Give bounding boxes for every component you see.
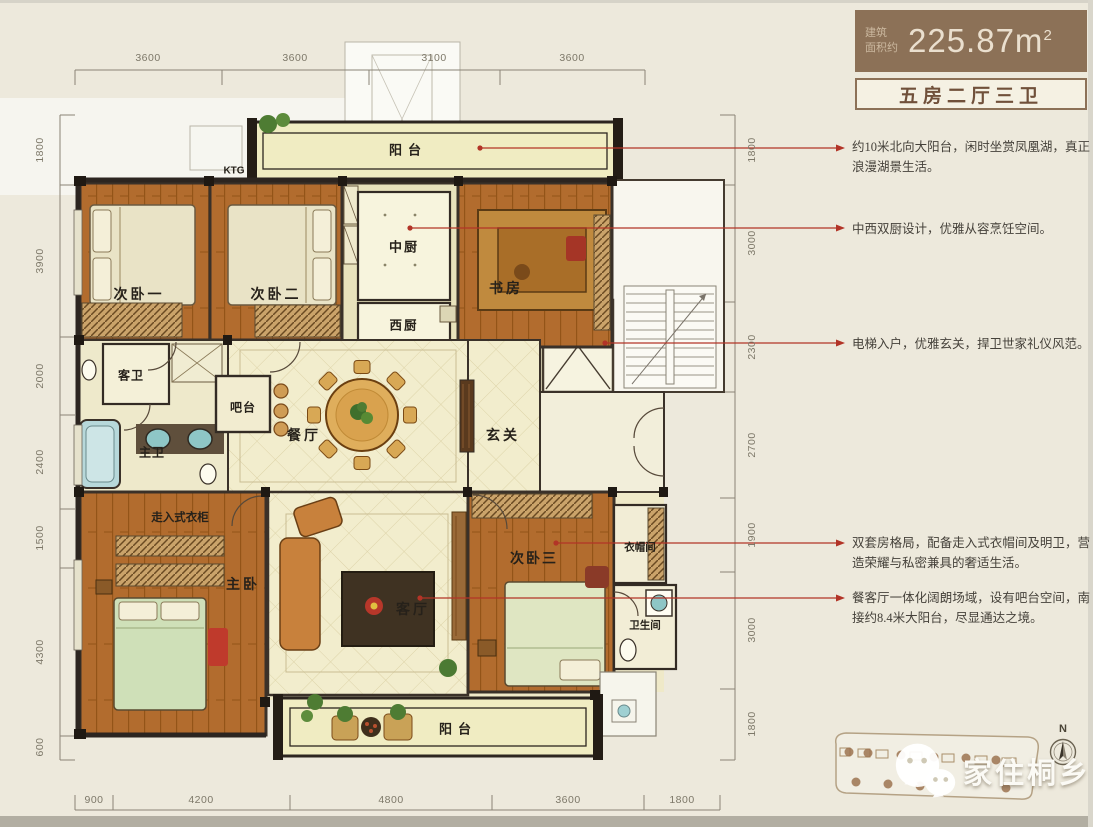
floorplan-graphic: [0, 0, 1093, 827]
room-label-master-bedroom: 主卧: [226, 574, 260, 594]
dim-left-1: 1800: [34, 137, 46, 162]
room-label-ktg: KTG: [223, 166, 244, 177]
area-prefix: 建筑 面积约: [865, 26, 898, 56]
bath-zone-shape: [78, 340, 228, 492]
dim-left-6: 4300: [34, 639, 46, 664]
wechat-icon: [893, 740, 959, 802]
room-label-kitchen-west: 西厨: [389, 315, 418, 334]
dim-left-7: 600: [34, 737, 46, 756]
dim-bottom-5: 1800: [669, 794, 694, 806]
room-label-study: 书房: [489, 278, 523, 298]
room-label-balcony-bottom: 阳台: [439, 719, 477, 738]
dim-bottom-1: 900: [84, 794, 103, 806]
annotation-elevator: 电梯入户，优雅玄关，捍卫世家礼仪风范。: [852, 334, 1090, 354]
room-label-kitchen-cn: 中厨: [389, 237, 419, 256]
dim-right-1: 1800: [746, 137, 758, 162]
dim-top-2: 3600: [282, 52, 307, 64]
room-label-walkin-closet: 走入式衣柜: [151, 509, 209, 525]
bedroom2-1-shape: [80, 183, 210, 340]
bedroom2-2-shape: [210, 183, 342, 340]
dim-bottom-3: 4800: [378, 794, 403, 806]
area-badge: 建筑 面积约 225.87m2: [855, 10, 1087, 72]
room-label-balcony-top: 阳台: [389, 140, 427, 159]
dim-top-4: 3600: [559, 52, 584, 64]
room-label-bedroom3: 次卧三: [510, 548, 558, 568]
master-suite-shape: [80, 492, 266, 735]
annotation-suites: 双套房格局，配备走入式衣帽间及明卫，营造荣耀与私密兼具的奢适生活。: [852, 533, 1090, 574]
room-label-foyer: 玄关: [486, 425, 520, 445]
room-label-living: 客厅: [396, 599, 430, 619]
equipment-platform: [600, 672, 656, 736]
stair-core: [612, 180, 724, 392]
dim-left-3: 2000: [34, 363, 46, 388]
room-label-guest-bath: 客卫: [118, 367, 144, 384]
annotation-living: 餐客厅一体化阔朗场域，设有吧台空间，南接约8.4米大阳台，尽显通达之境。: [852, 588, 1090, 629]
entry-lobby: [540, 392, 664, 492]
unit-type-label: 五房二厅三卫: [855, 78, 1087, 110]
room-label-bar: 吧台: [230, 399, 256, 416]
dim-right-6: 3000: [746, 617, 758, 642]
annotation-kitchen: 中西双厨设计，优雅从容烹饪空间。: [852, 219, 1090, 239]
dim-top-1: 3600: [135, 52, 160, 64]
room-label-bath3: 卫生间: [629, 618, 661, 633]
dim-right-4: 2700: [746, 432, 758, 457]
dim-top-3: 3100: [421, 52, 446, 64]
dim-left-4: 2400: [34, 449, 46, 474]
dim-bottom-2: 4200: [188, 794, 213, 806]
dim-right-3: 2300: [746, 334, 758, 359]
room-label-cloakroom: 衣帽间: [624, 540, 656, 555]
area-value: 225.87m2: [908, 22, 1053, 60]
dim-right-7: 1800: [746, 711, 758, 736]
dim-left-2: 3900: [34, 248, 46, 273]
watermark: 家住桐乡: [893, 740, 1091, 802]
watermark-text: 家住桐乡: [963, 750, 1091, 792]
dim-right-2: 3000: [746, 230, 758, 255]
room-label-bedroom2-2: 次卧二: [251, 284, 302, 304]
annotation-balcony: 约10米北向大阳台，闲时坐赏凤凰湖，真正浪漫湖景生活。: [852, 137, 1090, 178]
room-label-master-bath: 主卫: [139, 444, 165, 461]
foyer-shape: [460, 340, 540, 492]
dining-shape: [216, 340, 468, 492]
room-label-bedroom2-1: 次卧一: [114, 284, 165, 304]
compass-north-label: N: [1059, 723, 1067, 735]
dim-right-5: 1900: [746, 522, 758, 547]
dim-left-5: 1500: [34, 525, 46, 550]
bedroom3-shape: [468, 492, 614, 692]
living-shape: [268, 492, 468, 695]
dim-bottom-4: 3600: [555, 794, 580, 806]
room-label-dining: 餐厅: [287, 425, 321, 445]
